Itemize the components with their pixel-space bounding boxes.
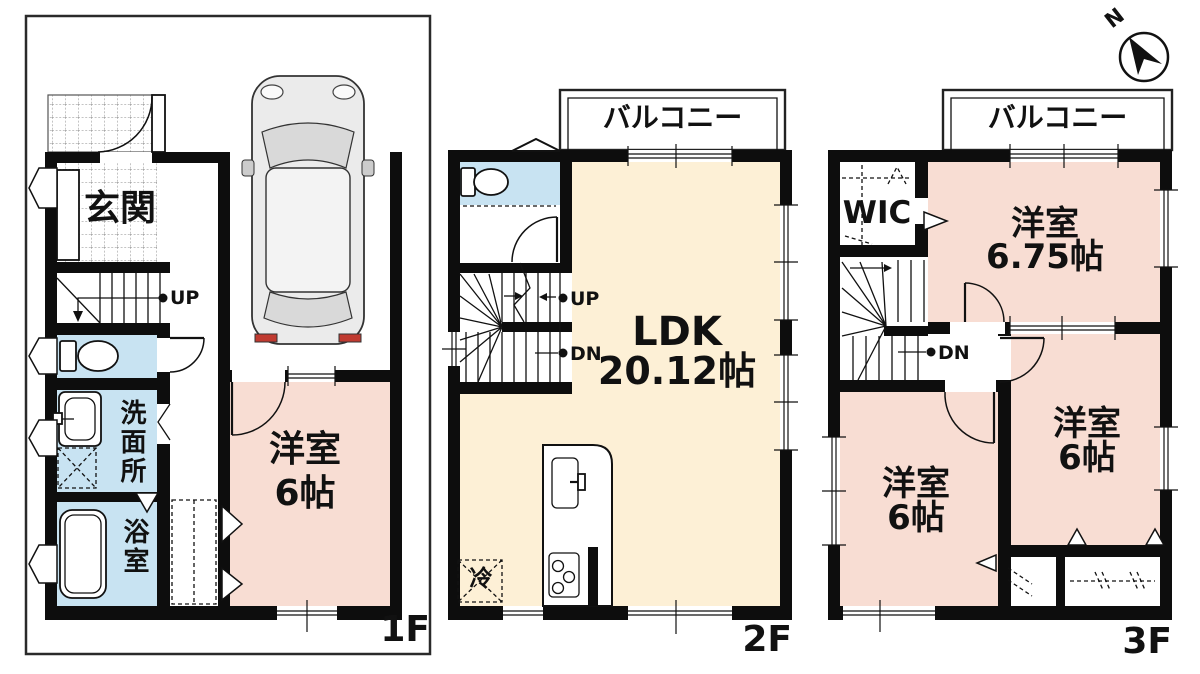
stairs-down-label-3f: DN <box>938 344 970 363</box>
compass-icon <box>1120 33 1168 81</box>
stairs-3f <box>842 260 936 380</box>
western-room-1f-name: 洋室 <box>230 432 380 468</box>
sink-icon <box>53 392 101 446</box>
balcony-label-3f: バルコニー <box>951 104 1164 132</box>
entrance-roof-mark <box>512 139 560 151</box>
kitchen-counter-icon <box>543 445 612 606</box>
western-room-675-name: 洋室 <box>970 207 1120 241</box>
genkan-label: 玄関 <box>62 191 178 227</box>
ldk-name-label: LDK <box>597 312 757 352</box>
ldk-size-label: 20.12帖 <box>577 352 777 390</box>
toilet-icon-1f <box>60 341 118 371</box>
western-room-6-left-size: 6帖 <box>843 501 989 535</box>
closet-right-3f <box>1070 572 1155 590</box>
window-left-2f <box>442 332 466 366</box>
floor-1f-plan <box>26 16 430 654</box>
stairs-up-dot-1f <box>159 294 168 303</box>
bathroom-label: 浴室 <box>115 518 147 576</box>
western-room-6-right-name: 洋室 <box>1014 407 1160 441</box>
stairs-down-dot-3f <box>927 348 936 357</box>
hall-door-2f <box>512 217 557 262</box>
floor-3f-plan <box>822 90 1178 632</box>
stairs-down-dot-2f <box>559 349 568 358</box>
western-room-1f-size: 6帖 <box>230 476 380 512</box>
window-bottom-small-2f <box>503 606 543 620</box>
bathtub-icon <box>60 510 106 598</box>
western-room-6-left-name: 洋室 <box>843 467 989 501</box>
floor-plan-page: 玄関 UP 洗面所 浴室 洋室 6帖 1F バルコニー UP DN LDK 20… <box>0 0 1200 674</box>
stairs-up-label-1f: UP <box>170 289 199 308</box>
western-room-6-right-size: 6帖 <box>1014 441 1160 475</box>
floor-label-2f: 2F <box>712 622 792 658</box>
closet-center-3f <box>1008 568 1032 596</box>
floor-label-3f: 3F <box>1092 624 1172 660</box>
western-room-675-size: 6.75帖 <box>970 240 1120 274</box>
entrance-porch-tiles <box>48 95 155 152</box>
stairs-up-dot-2f <box>559 294 568 303</box>
refrigerator-label: 冷 <box>466 568 496 591</box>
wic-label: WIC <box>837 198 917 229</box>
floor-label-1f: 1F <box>350 612 430 648</box>
toilet-icon-2f <box>461 168 508 196</box>
balcony-label-2f: バルコニー <box>568 104 777 132</box>
stairs-up-label-2f: UP <box>570 290 599 309</box>
washroom-label: 洗面所 <box>112 399 144 486</box>
car-icon <box>242 76 374 344</box>
